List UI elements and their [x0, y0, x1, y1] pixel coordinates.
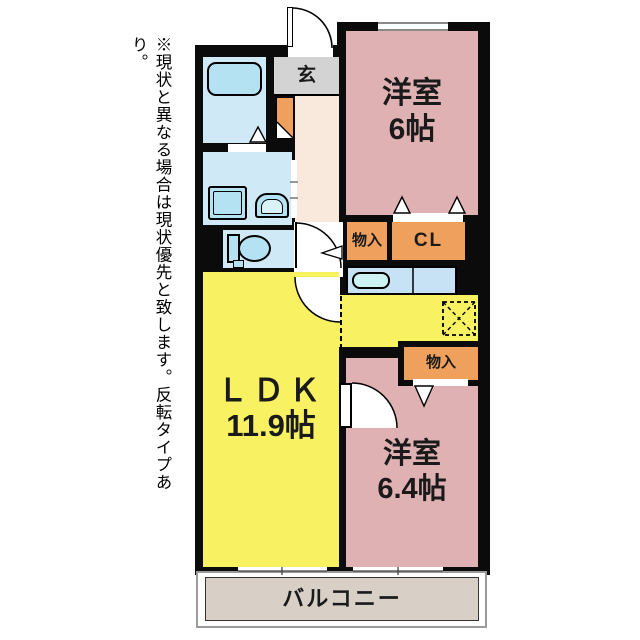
bedroom1-label-box: 洋室 6帖 — [346, 76, 478, 148]
wash-basin-bowl — [261, 199, 283, 214]
entrance-door-arc — [292, 8, 332, 48]
washroom-sliding-door — [291, 160, 297, 218]
floor-plan: ※現状と異なる場合は現状優先と致します。反転タイプあり。 — [0, 0, 640, 640]
kitchen-area — [339, 295, 478, 347]
bathtub — [207, 62, 262, 96]
entrance-label-box: 玄 — [274, 57, 339, 95]
bedroom1-label: 洋室 — [382, 76, 442, 112]
window-bedroom1 — [378, 22, 448, 31]
bedroom2-door-leaf — [339, 383, 352, 428]
kitchen-sink — [352, 272, 390, 289]
wash-basin — [255, 193, 289, 218]
storage2-label-box: 物入 — [404, 347, 478, 380]
shoe-cabinet — [276, 97, 294, 139]
entrance-opening — [288, 45, 333, 57]
bedroom2-label: 洋室 — [383, 437, 441, 472]
storage2-label: 物入 — [426, 355, 456, 372]
storage1-label: 物入 — [352, 233, 382, 250]
toilet-handle — [233, 260, 244, 268]
hallway — [295, 96, 339, 222]
washing-machine-drum — [213, 191, 242, 215]
entrance-door-leaf — [287, 7, 293, 47]
disclaimer-note: ※現状と異なる場合は現状優先と致します。反転タイプあり。 — [146, 36, 174, 514]
bedroom2-label-box: 洋室 6.4帖 — [346, 437, 478, 507]
storage1-label-box: 物入 — [347, 222, 387, 260]
balcony-label: バルコニー — [282, 587, 402, 612]
balcony: バルコニー — [205, 577, 479, 621]
toilet-bowl — [238, 235, 271, 262]
ldk-size: 11.9帖 — [226, 408, 316, 443]
ldk-label: ＬＤＫ — [217, 373, 325, 408]
entrance-label: 玄 — [297, 65, 316, 86]
cl-label: CL — [414, 230, 443, 251]
toilet-door-area — [294, 222, 343, 268]
bedroom2-size: 6.4帖 — [377, 472, 446, 507]
washing-machine — [208, 186, 247, 220]
closet-storage2-door-strip — [413, 379, 468, 386]
bathroom-door-strip — [228, 144, 266, 152]
ldk-label-box: ＬＤＫ 11.9帖 — [203, 373, 339, 443]
bedroom1-closet-door-strip — [393, 213, 463, 222]
cl-label-box: CL — [392, 222, 465, 260]
bedroom1-size: 6帖 — [389, 112, 436, 148]
